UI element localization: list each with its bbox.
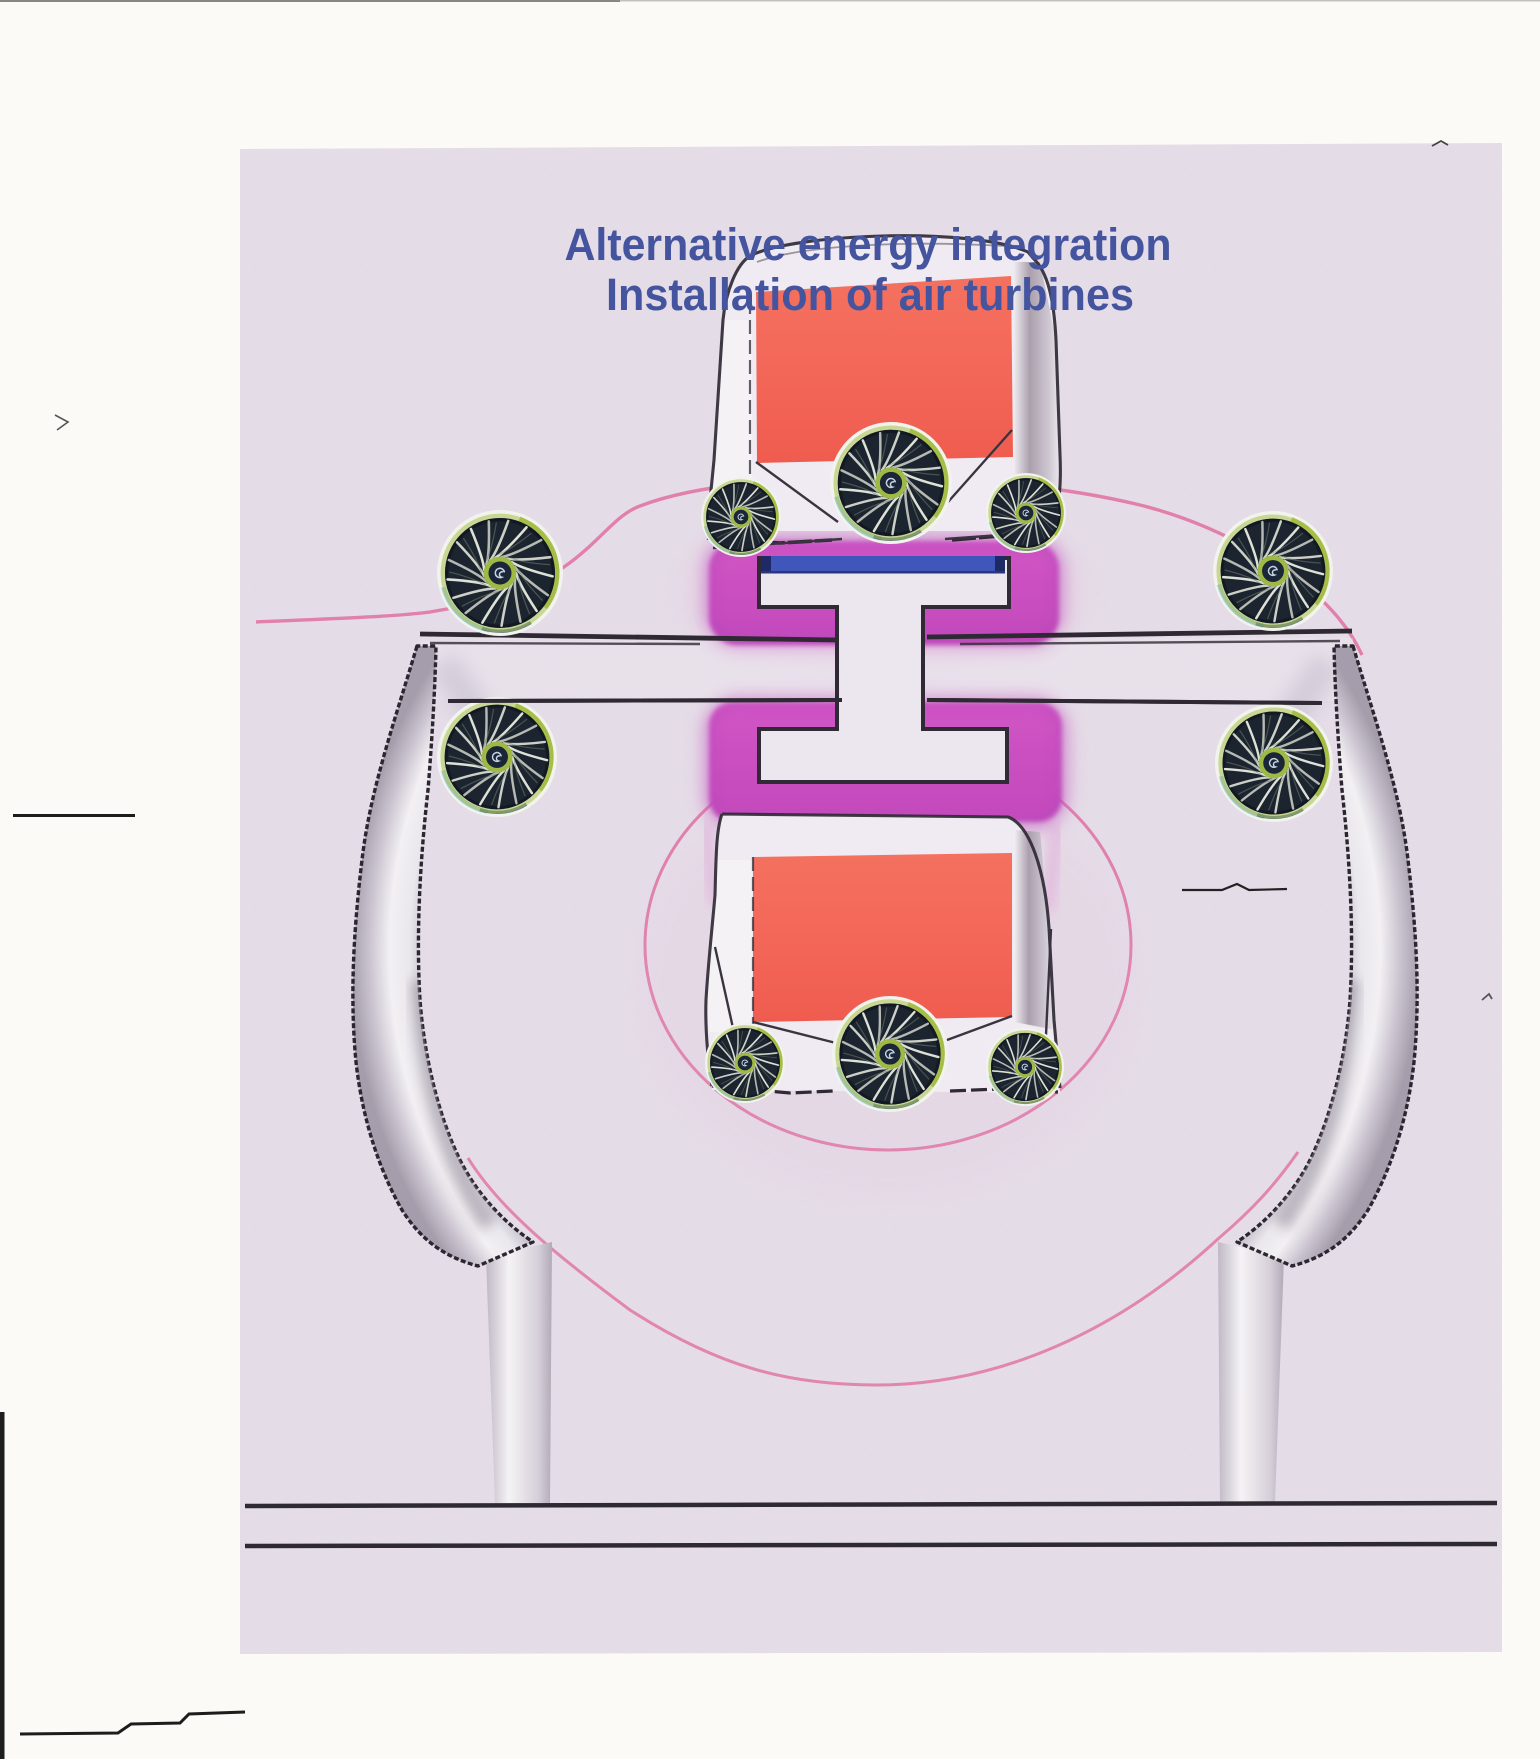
svg-text:Installation of air turbines: Installation of air turbines [606, 269, 1134, 320]
svg-text:Alternative energy integration: Alternative energy integration [565, 219, 1172, 270]
